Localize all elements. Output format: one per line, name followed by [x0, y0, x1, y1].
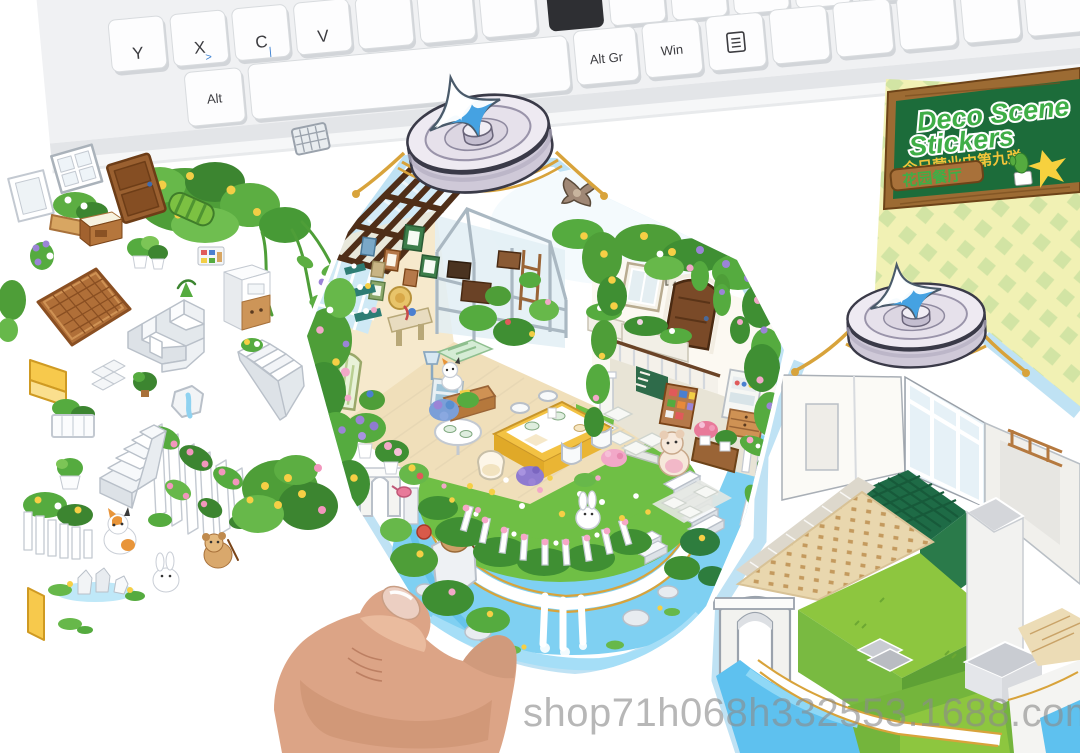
- svg-text:shop71h068h332553.1688.com: shop71h068h332553.1688.com: [523, 691, 1080, 735]
- svg-text:Alt: Alt: [206, 90, 223, 106]
- svg-text:Alt Gr: Alt Gr: [589, 49, 624, 67]
- svg-text:>: >: [205, 51, 213, 64]
- svg-text:Y: Y: [131, 43, 144, 63]
- svg-text:C: C: [254, 32, 268, 52]
- svg-text:Win: Win: [660, 42, 684, 59]
